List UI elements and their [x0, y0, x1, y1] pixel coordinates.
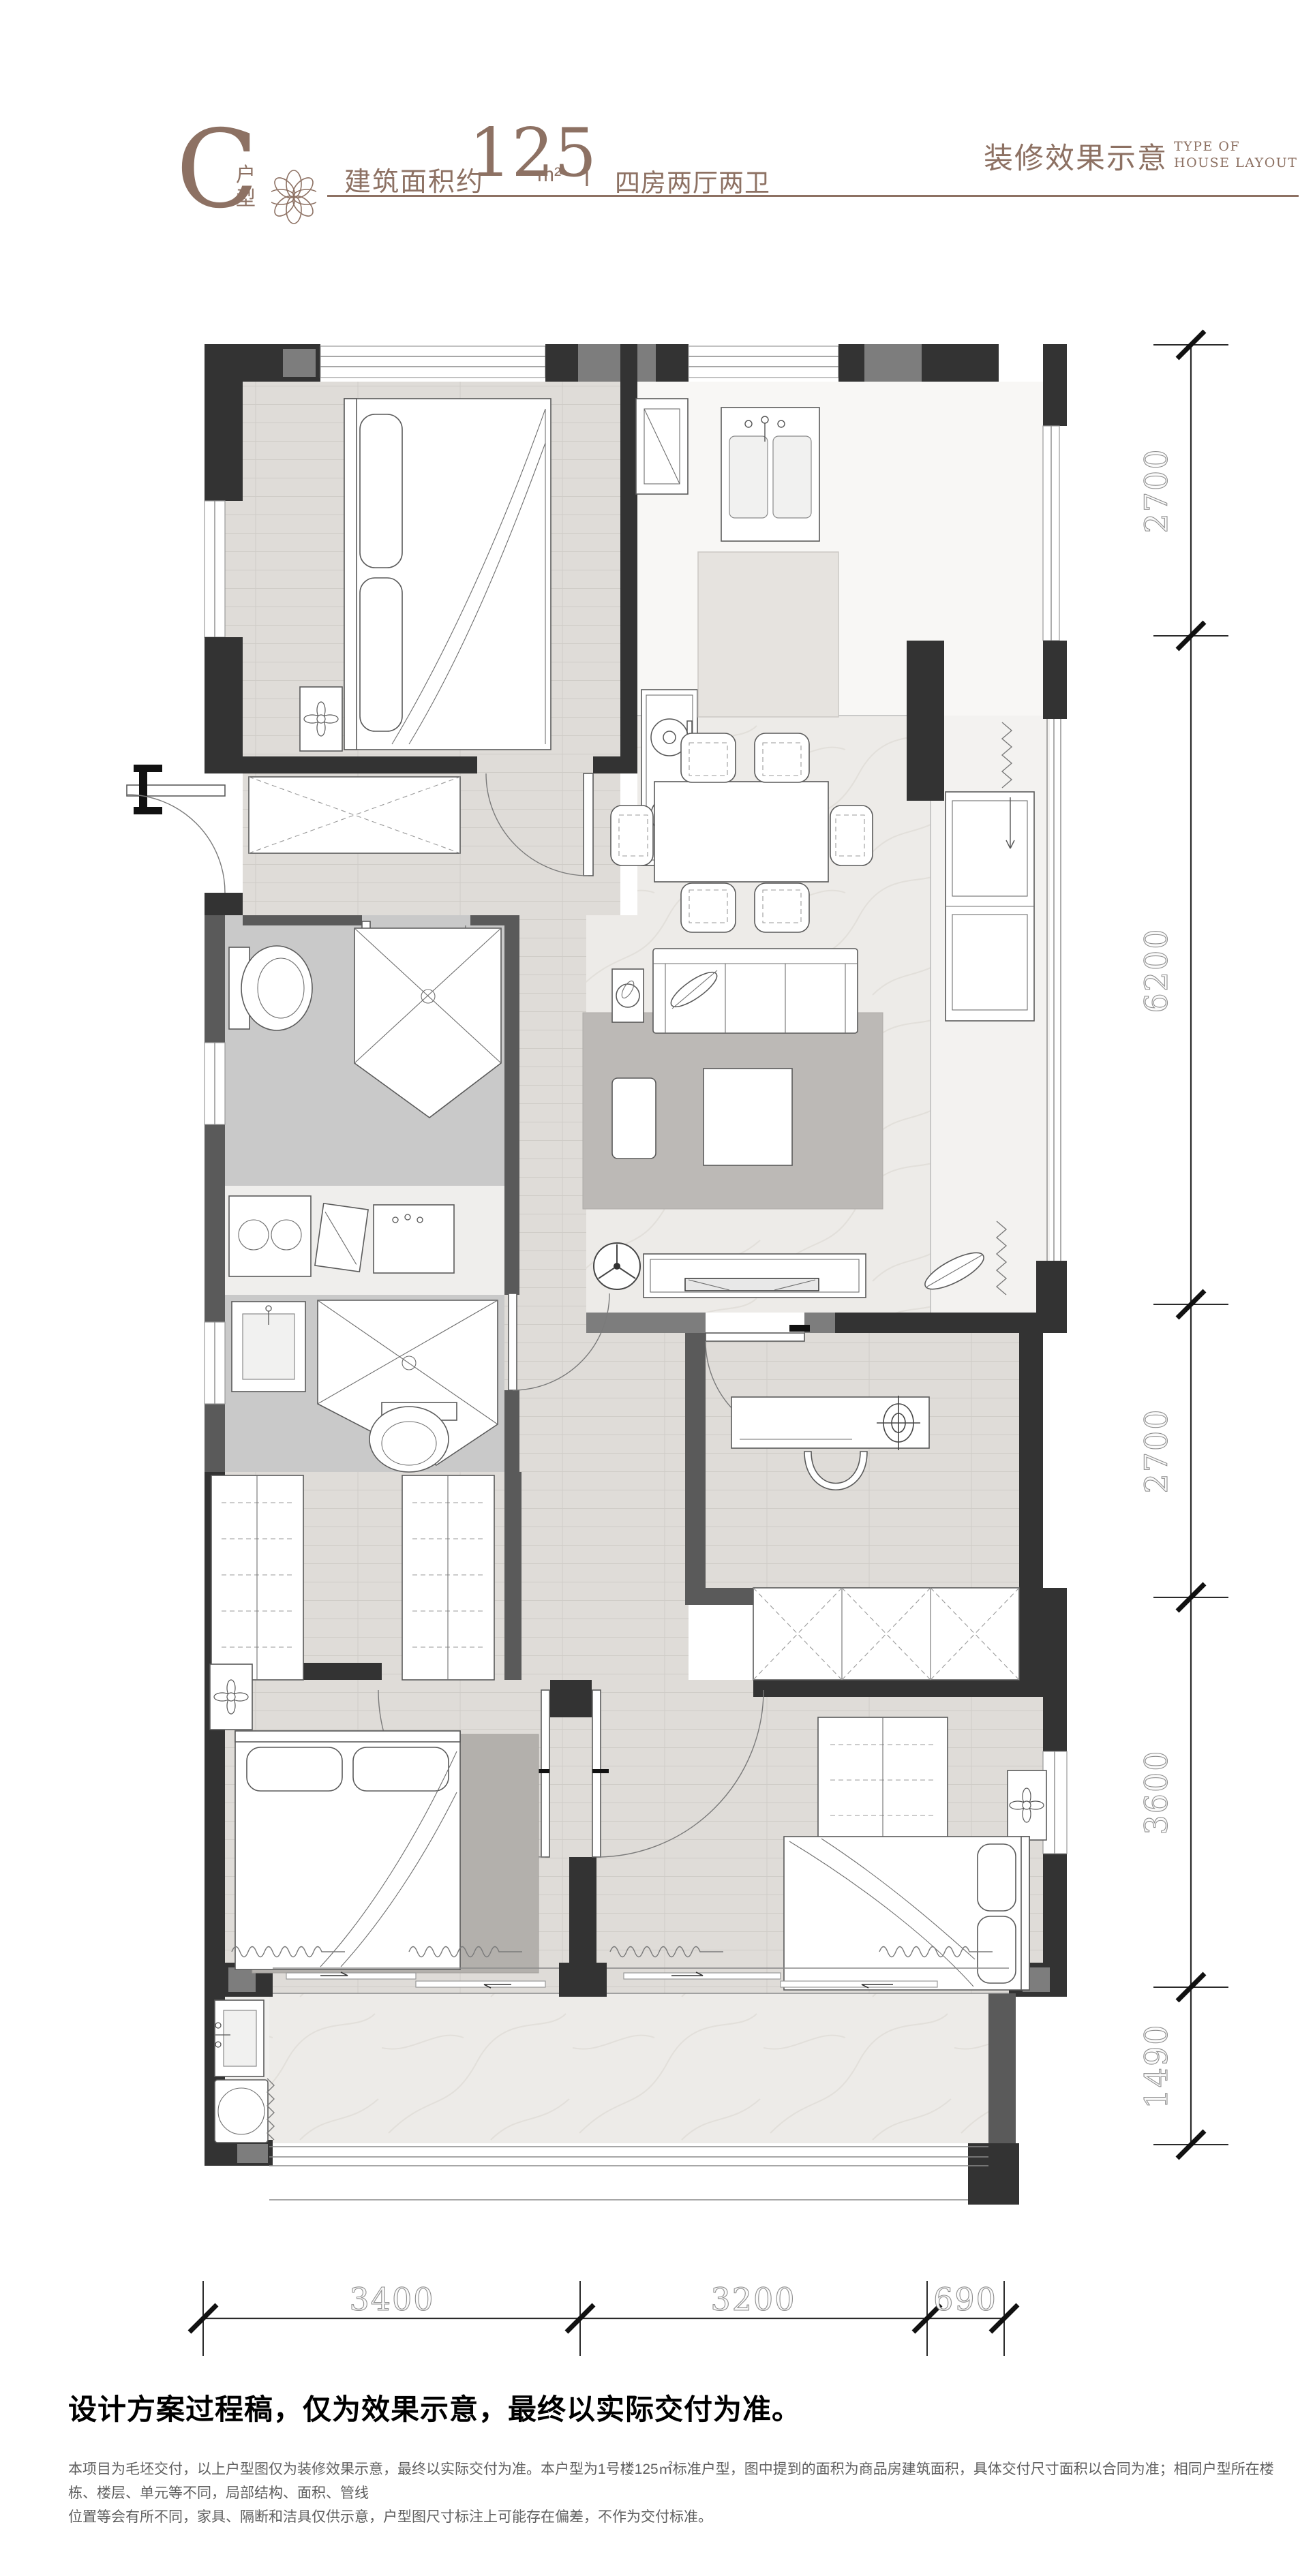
window-top-1: [320, 346, 545, 378]
wall-bedroom-right-north: [753, 1680, 1043, 1697]
wall-top-right-gray: [864, 344, 922, 382]
wall-bedroom-top-south-b: [593, 756, 620, 773]
wall-study-west: [685, 1333, 706, 1588]
toilet-upper: [229, 946, 312, 1030]
laundry-counter: [374, 1205, 454, 1273]
wall-ne-corner: [1043, 344, 1067, 426]
bottom-washer: [215, 2080, 268, 2143]
page: { "header": { "unit_letter": "C", "unit_…: [0, 0, 1315, 2576]
wall-bath1-top-a: [243, 915, 362, 925]
wall-top-left-gray: [283, 349, 316, 377]
coffee-table: [704, 1069, 792, 1165]
dimensions-right: 2700 6200 2700 3600 1490: [1138, 331, 1228, 2158]
south-slider-1a: [286, 1973, 416, 1979]
wall-balcony-corner: [968, 2143, 1019, 2205]
bed-left-pillow-2: [353, 1747, 449, 1791]
wall-study-north: [835, 1313, 1040, 1333]
wall-bath-column-east-a: [504, 915, 519, 1295]
dim-right-5: 1490: [1138, 2023, 1175, 2109]
study-door-leaf: [706, 1333, 804, 1341]
footer-disclaimer-line2: 位置等会有所不同，家具、隔断和洁具仅供示意，户型图尺寸标注上可能存在偏差，不作为…: [68, 2505, 1288, 2529]
wall-kitchen-stub: [907, 641, 944, 801]
wall-top-mid-gray: [578, 344, 656, 382]
south-slider-2b: [781, 1981, 937, 1987]
bed-right-pillow-1: [978, 1844, 1016, 1911]
kitchen-island: [698, 552, 838, 717]
wall-east-block: [1043, 641, 1067, 719]
study-door-hinge: [789, 1325, 810, 1332]
floor-plan: 2700 6200 2700 3600 1490 3400 3200 690: [0, 0, 1315, 2576]
wall-sw-gray: [228, 1967, 256, 1992]
dim-bottom-1: 3400: [349, 2281, 434, 2318]
toilet-lower-bowl: [369, 1407, 449, 1472]
south-slider-1b: [416, 1981, 545, 1987]
wall-study-south-stub: [685, 1588, 753, 1605]
bottom-glazing: [269, 2147, 988, 2200]
bedroom-top-door-leaf: [584, 773, 593, 876]
dining-chair-right: [830, 806, 873, 865]
bed-right-pillow-2: [978, 1916, 1016, 1983]
dim-right-2: 6200: [1138, 927, 1175, 1013]
foyer-closet: [249, 777, 460, 853]
bed-top-pillow-2: [360, 578, 402, 731]
wall-bath1-top-b: [470, 915, 504, 925]
bed-top-headboard: [344, 399, 357, 750]
bed-top-pillow-1: [360, 414, 402, 568]
dim-right-3: 2700: [1138, 1408, 1175, 1493]
bedroom-left-door-leaf: [541, 1690, 549, 1857]
bottom-window-lines: [269, 2147, 988, 2200]
washer: [229, 1196, 311, 1276]
wall-bottom-left-gray: [237, 2144, 268, 2163]
bath2-door-leaf: [509, 1293, 517, 1390]
footer-statement: 设计方案过程稿，仅为效果示意，最终以实际交付为准。: [68, 2387, 801, 2428]
bed-left-headboard: [235, 1731, 460, 1742]
wall-study-east: [1019, 1333, 1043, 1588]
wall-study-north-gray: [586, 1313, 706, 1333]
balcony-bottom-floor: [269, 1993, 988, 2143]
study-wardrobe: [753, 1588, 1019, 1680]
wall-se-step: [1019, 1588, 1067, 1680]
wall-balcony-se: [1036, 1261, 1067, 1333]
dimensions-bottom: 3400 3200 690: [190, 2281, 1018, 2356]
floor-lamp: [594, 1243, 640, 1289]
window-top-2: [689, 346, 838, 378]
wall-door-stub: [550, 1680, 592, 1717]
laundry-mid: [229, 1196, 454, 1276]
wall-left-mid: [205, 637, 243, 773]
wall-left-entry-low: [205, 893, 243, 915]
tv: [685, 1278, 819, 1291]
dining-chair-left: [611, 806, 653, 865]
footer-disclaimer: 本项目为毛坯交付，以上户型图仅为装修效果示意，最终以实际交付为准。本户型为1号楼…: [68, 2457, 1288, 2529]
wall-corridor-west: [504, 1472, 522, 1680]
dining-table: [654, 782, 828, 882]
dim-bottom-2: 3200: [710, 2281, 796, 2318]
ottoman: [612, 1078, 656, 1159]
bed-left-pillow-1: [247, 1747, 342, 1791]
dim-right-4: 3600: [1138, 1749, 1175, 1835]
wall-left-upper: [205, 344, 243, 501]
dim-right-1: 2700: [1138, 448, 1175, 533]
bedroom-right-door-leaf: [592, 1690, 601, 1857]
bed-right-headboard: [1021, 1837, 1029, 1990]
wall-s-center-block: [559, 1963, 607, 1997]
footer-disclaimer-line1: 本项目为毛坯交付，以上户型图仅为装修效果示意，最终以实际交付为准。本户型为1号楼…: [68, 2457, 1288, 2505]
wall-bedroom-top-south-a: [205, 756, 477, 773]
wall-bedroom-kitchen: [620, 344, 637, 773]
wall-bath-column-east-b: [504, 1390, 519, 1472]
dim-bottom-3: 690: [933, 2281, 997, 2318]
bottom-vanity-basin: [224, 2010, 256, 2066]
wall-balcony-right: [988, 1993, 1016, 2143]
kitchen-sink-basin-1: [729, 436, 768, 518]
laundry-basket: [315, 1203, 368, 1272]
kitchen-sink-basin-2: [773, 436, 811, 518]
